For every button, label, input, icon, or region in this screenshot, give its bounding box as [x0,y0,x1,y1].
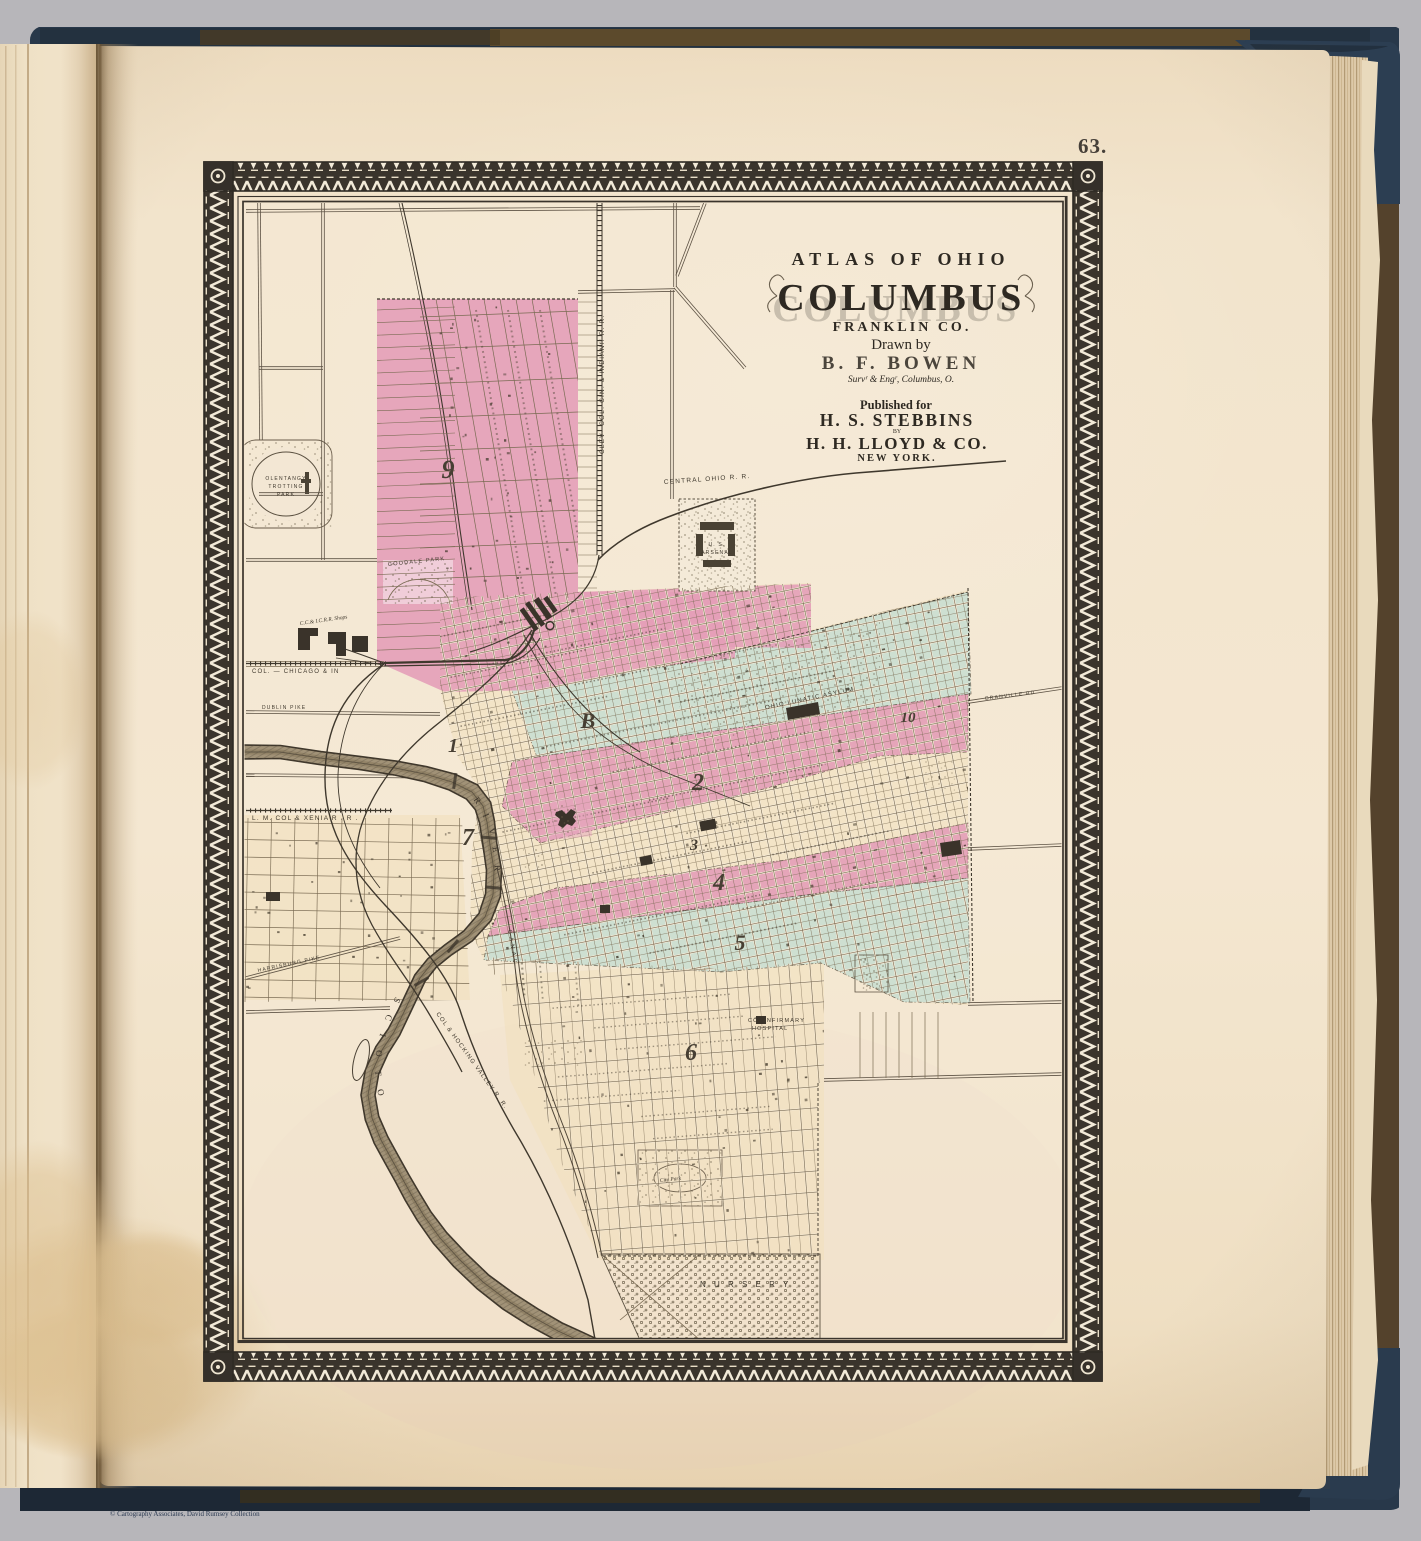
svg-text:TROTTING: TROTTING [268,484,303,490]
svg-text:10: 10 [901,710,917,726]
svg-text:B: B [580,708,596,733]
svg-text:COLUMBUS: COLUMBUS [777,277,1025,319]
svg-text:9: 9 [442,455,455,484]
svg-text:7: 7 [462,825,475,851]
svg-text:4: 4 [712,870,725,896]
svg-text:H. S. STEBBINS: H. S. STEBBINS [820,410,974,430]
svg-text:L. M. COL & XENIA R . R .: L. M. COL & XENIA R . R . [252,815,359,822]
svg-text:FRANKLIN CO.: FRANKLIN CO. [833,320,972,335]
svg-text:6: 6 [685,1040,697,1066]
svg-text:B. F. BOWEN: B. F. BOWEN [822,353,980,374]
svg-text:© Cartography Associates, Davi: © Cartography Associates, David Rumsey C… [110,1510,260,1518]
svg-text:HOSPITAL: HOSPITAL [752,1026,788,1032]
svg-text:Drawn by: Drawn by [871,337,931,353]
svg-text:COL. — CHICAGO & IN: COL. — CHICAGO & IN [252,669,339,675]
svg-text:1: 1 [448,735,458,757]
svg-text:DUBLIN PIKE: DUBLIN PIKE [262,705,306,711]
svg-text:5: 5 [735,930,746,955]
svg-text:U. S.: U. S. [708,542,725,548]
svg-text:H. H. LLOYD & CO.: H. H. LLOYD & CO. [806,434,988,453]
svg-text:Survʳ & Engʳ, Columbus, O.: Survʳ & Engʳ, Columbus, O. [848,375,954,385]
svg-text:N U R S E R Y: N U R S E R Y [700,1280,791,1289]
svg-text:ATLAS OF OHIO: ATLAS OF OHIO [791,249,1010,269]
svg-text:OLENTANGY: OLENTANGY [265,476,306,482]
svg-text:2: 2 [691,770,704,796]
svg-text:3: 3 [689,837,698,854]
svg-text:ARSENAL: ARSENAL [701,550,733,556]
svg-text:CO. INFIRMARY: CO. INFIRMARY [748,1018,805,1024]
svg-text:CLEV· COL. CIN. & INDIANff R.: CLEV· COL. CIN. & INDIANff R. R. [599,315,606,454]
svg-text:PARK: PARK [277,492,295,498]
svg-text:NEW YORK.: NEW YORK. [857,453,936,464]
